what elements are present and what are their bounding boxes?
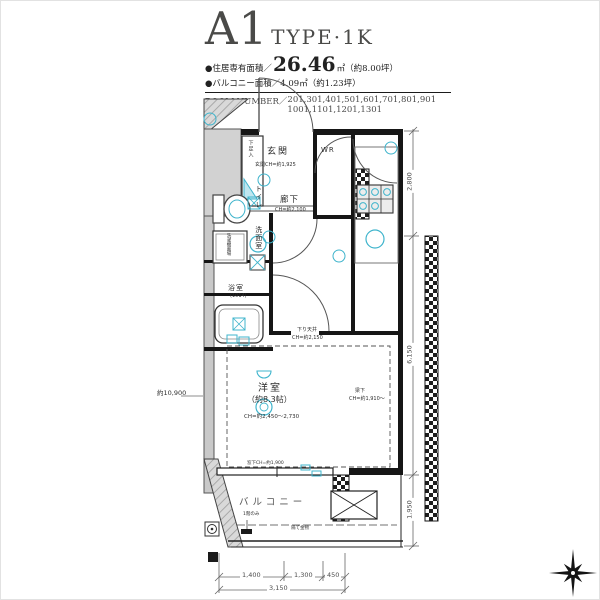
drop-ceiling-dashed xyxy=(227,346,390,467)
drain-icon-dot xyxy=(211,528,214,531)
label-window-ch: 窓下CH=約1,900 xyxy=(247,462,284,467)
wall-wr-bottom xyxy=(313,215,355,219)
dim-bottom-2: 1,300 xyxy=(292,572,315,579)
toilet-door-arc xyxy=(273,219,317,263)
floorplan-drawing xyxy=(1,1,600,600)
label-balcony: バルコニー xyxy=(239,498,306,508)
label-bathroom: 浴室 xyxy=(228,285,244,293)
wall-bath-bottom xyxy=(204,347,273,351)
label-bedroom: 洋室 xyxy=(258,383,282,394)
bottom-left-block xyxy=(208,552,218,562)
label-entrance-ch: 玄関CH=約1,925 xyxy=(255,163,296,169)
wall-bedroom-top-a xyxy=(269,331,291,335)
floorplan-page: A1 TYPE·1K ● 住居専有面積／ 26.46 ㎡（約8.00坪） ● バ… xyxy=(0,0,600,600)
corridor-hatch-band xyxy=(425,236,438,521)
label-toilet: トイレ xyxy=(254,185,262,209)
label-hallway-ch: CH=約2,100 xyxy=(275,208,306,214)
marker-circle-3 xyxy=(385,142,397,154)
marker-circle-5 xyxy=(333,250,345,262)
label-entrance: 玄関 xyxy=(267,148,289,158)
dim-bottom-3: 450 xyxy=(325,572,341,579)
label-bathroom-size: (1014) xyxy=(230,294,247,300)
wall-top-left xyxy=(241,129,259,135)
label-drop-ceiling: 下り天井 xyxy=(297,328,317,334)
label-hallway: 廊下 xyxy=(280,196,299,205)
label-overall-height: 約10,900 xyxy=(157,390,186,397)
first-floor-marker xyxy=(241,529,252,534)
wr-door-arc xyxy=(315,137,351,173)
label-beam: 梁下 xyxy=(355,389,365,395)
dim-right-3: 1,950 xyxy=(407,498,414,521)
wall-top-right xyxy=(313,129,403,135)
entrance-door-arc xyxy=(259,78,313,132)
wall-bedroom-top-b xyxy=(319,331,403,335)
compass-center xyxy=(571,571,575,575)
label-shoe-cabinet: 下足入 xyxy=(247,140,253,158)
wall-wr-left xyxy=(313,134,317,219)
label-bedroom-ch: CH=約2,450〜2,730 xyxy=(244,414,299,420)
label-storage: WR xyxy=(321,147,335,155)
label-partition: 隔て金物 xyxy=(289,527,311,532)
dim-right-2: 6,150 xyxy=(407,343,414,366)
dim-right-1: 2,800 xyxy=(407,170,414,193)
bedroom-door-arc xyxy=(273,275,329,331)
toilet-bowl-icon xyxy=(224,195,250,223)
light-icon xyxy=(257,371,271,378)
label-beam-ch: CH=約1,910〜 xyxy=(349,397,385,403)
label-washroom: 洗面室 xyxy=(254,226,262,250)
label-laundry: 洗濯機置場 xyxy=(225,233,230,256)
wall-right xyxy=(398,129,403,475)
dim-bottom-total: 3,150 xyxy=(267,585,290,592)
wall-wr-right xyxy=(351,134,355,331)
label-bedroom-size: （約8.3帖） xyxy=(247,396,292,405)
label-first-floor-only: 1階のみ xyxy=(243,513,259,518)
toilet-tank xyxy=(213,195,224,223)
wall-window-right xyxy=(349,468,403,475)
dim-bottom-1: 1,400 xyxy=(240,572,263,579)
kitchen-sink-icon xyxy=(366,230,384,248)
label-drop-ceiling-ch: CH=約2,150 xyxy=(292,336,323,342)
